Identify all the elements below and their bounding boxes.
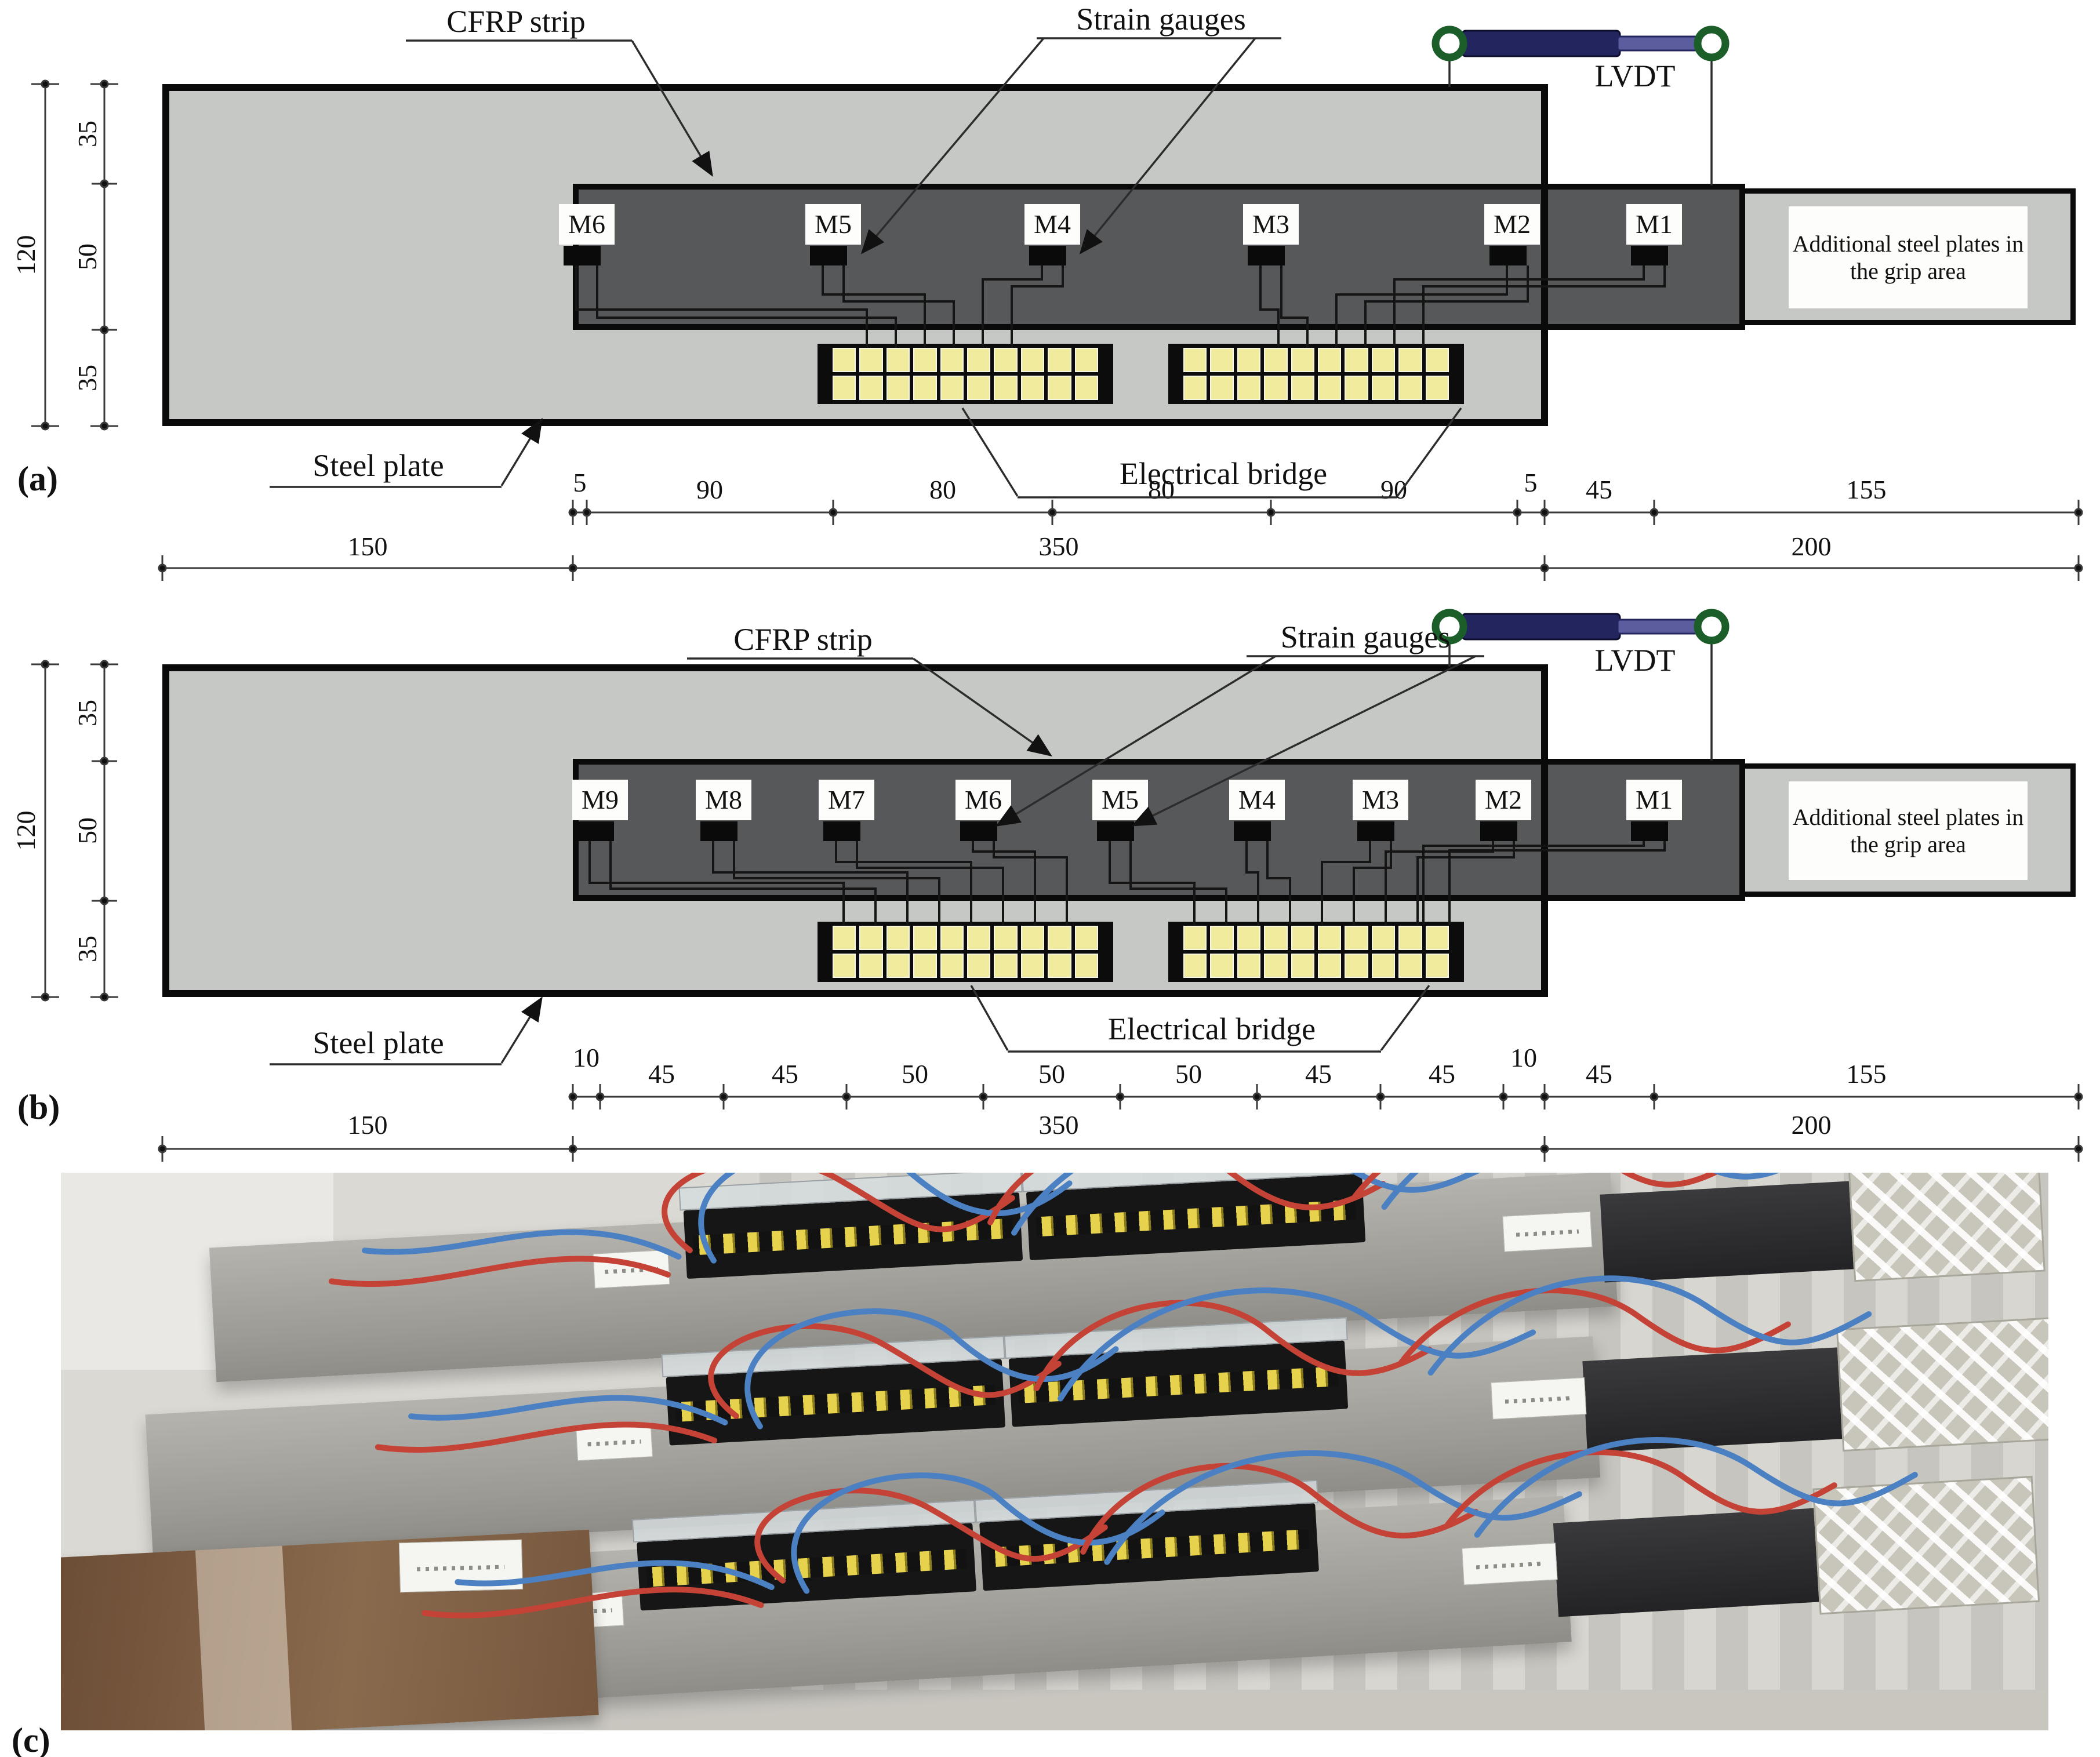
strain-gauge [1234, 821, 1271, 841]
gauge-label: M4 [1024, 204, 1080, 245]
dim-80: 80 [908, 474, 978, 505]
panel-a-caption: (a) [17, 459, 58, 499]
dim-45: 45 [750, 1058, 820, 1089]
dim-5: 5 [1513, 467, 1548, 498]
electrical-bridge-block [818, 922, 1113, 982]
dim-200: 200 [1765, 531, 1858, 562]
gauge-label: M7 [819, 780, 874, 820]
dim-35: 35 [72, 355, 102, 401]
figure-page: Additional steel plates in the grip area… [0, 0, 2100, 1757]
dim-10: 10 [1500, 1042, 1547, 1073]
strain-gauge [1097, 821, 1134, 841]
strain-gauge [577, 821, 614, 841]
electrical-bridge-block [1168, 344, 1464, 404]
plate-right-edge-a [1541, 84, 1548, 426]
strain-gauges-label: Strain gauges [1041, 1, 1281, 37]
panel-c-caption: (c) [12, 1720, 50, 1757]
specimen-tag [1462, 1543, 1557, 1585]
rusty-plate-tag [399, 1540, 523, 1593]
strain-gauge [960, 821, 997, 841]
steel-plate-label: Steel plate [278, 448, 478, 483]
dim-45: 45 [1564, 1058, 1634, 1089]
dim-120: 120 [10, 232, 41, 278]
strain-gauges-label: Strain gauges [1249, 619, 1481, 655]
dim-45: 45 [1284, 1058, 1353, 1089]
dim-350: 350 [1012, 531, 1105, 562]
strain-gauge [1357, 821, 1394, 841]
gauge-label: M3 [1243, 204, 1299, 245]
gauge-label: M3 [1353, 780, 1408, 820]
dim-155: 155 [1820, 474, 1913, 505]
dim-120: 120 [10, 807, 41, 854]
dim-10: 10 [563, 1042, 609, 1073]
strain-gauge [1631, 246, 1668, 265]
gauge-label: M1 [1626, 780, 1682, 820]
dim-150: 150 [321, 531, 414, 562]
specimen-tag [1491, 1377, 1586, 1420]
steel-plate-label: Steel plate [278, 1025, 478, 1061]
electrical-bridge-block [1168, 922, 1464, 982]
lvdt-label: LVDT [1565, 58, 1705, 94]
dim-35: 35 [72, 926, 102, 972]
lvdt-a [1436, 30, 1725, 57]
dim-350: 350 [1012, 1110, 1105, 1140]
electrical-bridge-block [818, 344, 1113, 404]
gauge-label: M9 [572, 780, 628, 820]
cfrp-strip-label: CFRP strip [400, 3, 632, 39]
grip-area-note-a: Additional steel plates in the grip area [1789, 206, 2028, 308]
lvdt-label: LVDT [1565, 642, 1705, 678]
strain-gauge [1029, 246, 1066, 265]
electrical-bridge-label: Electrical bridge [1055, 1011, 1368, 1047]
strain-gauge [1480, 821, 1517, 841]
dim-5: 5 [562, 467, 597, 498]
strain-gauge [810, 246, 847, 265]
dim-45: 45 [627, 1058, 696, 1089]
plate-right-edge-b [1541, 664, 1548, 997]
strain-gauge [700, 821, 737, 841]
strain-gauge [1489, 246, 1527, 265]
gauge-label: M6 [559, 204, 615, 245]
dim-35: 35 [72, 690, 102, 736]
gauge-label: M2 [1476, 780, 1531, 820]
strain-gauge [1631, 821, 1668, 841]
gauge-label: M5 [1092, 780, 1148, 820]
dim-50: 50 [1017, 1058, 1087, 1089]
strain-gauge [1248, 246, 1285, 265]
dim-150: 150 [321, 1110, 414, 1140]
gauge-label: M5 [805, 204, 861, 245]
gauge-label: M8 [696, 780, 751, 820]
specimen-tag [593, 1250, 670, 1289]
specimen-tag [576, 1422, 653, 1461]
grip-area-note-b: Additional steel plates in the grip area [1789, 781, 2028, 880]
dim-200: 200 [1765, 1110, 1858, 1140]
rusty-plate [61, 1530, 599, 1730]
electrical-bridge-label: Electrical bridge [1067, 456, 1380, 492]
cfrp-strip-a [573, 184, 1745, 330]
dim-45: 45 [1407, 1058, 1477, 1089]
dim-50: 50 [880, 1058, 950, 1089]
dim-90: 90 [675, 474, 744, 505]
gauge-label: M1 [1626, 204, 1682, 245]
gauge-label: M6 [955, 780, 1011, 820]
dim-35: 35 [72, 111, 102, 157]
specimen-tag [1502, 1212, 1592, 1252]
panel-b-caption: (b) [17, 1087, 60, 1127]
strain-gauge [823, 821, 860, 841]
dim-50: 50 [72, 807, 102, 854]
dim-50: 50 [72, 234, 102, 280]
gauge-label: M2 [1484, 204, 1540, 245]
dim-50: 50 [1154, 1058, 1223, 1089]
dim-45: 45 [1564, 474, 1634, 505]
cfrp-strip-label: CFRP strip [690, 621, 916, 657]
gauge-label: M4 [1229, 780, 1285, 820]
strain-gauge [564, 246, 601, 265]
dim-155: 155 [1820, 1058, 1913, 1089]
specimen-photo [61, 1173, 2048, 1730]
